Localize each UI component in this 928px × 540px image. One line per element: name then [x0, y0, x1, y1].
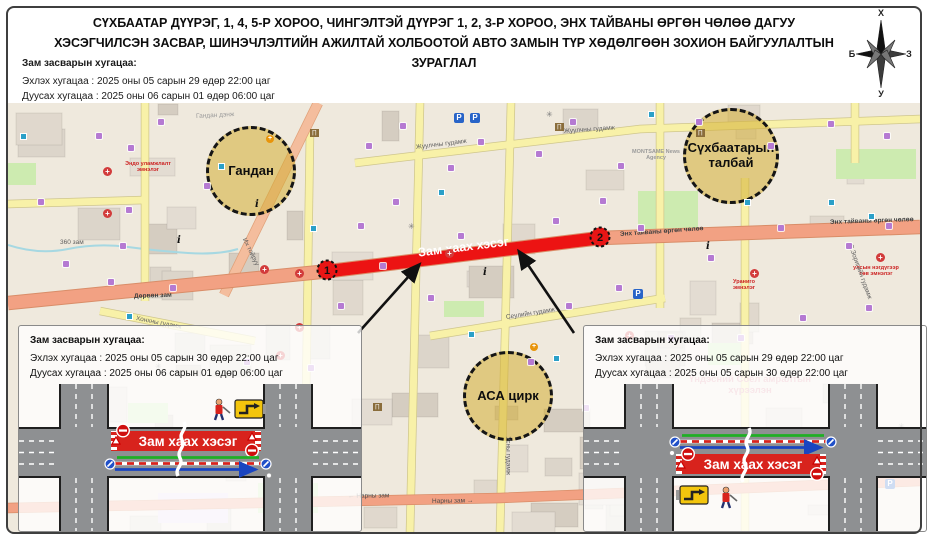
cart-icon	[553, 218, 559, 224]
cart-icon	[63, 261, 69, 267]
street-label: Усны гудамж	[505, 437, 512, 476]
cart-icon	[128, 145, 134, 151]
cross-icon: +	[295, 269, 304, 278]
cart-icon	[158, 119, 164, 125]
inset-left-panel: Зам засварын хугацаа: Эхлэх хугацаа : 20…	[18, 325, 362, 532]
title-line-1: СҮХБААТАР ДҮҮРЭГ, 1, 4, 5-Р ХОРОО, ЧИНГЭ…	[52, 13, 836, 33]
bus-icon	[744, 199, 751, 206]
cart-icon	[204, 183, 210, 189]
cart-icon	[448, 165, 454, 171]
cart-icon	[696, 119, 702, 125]
bank-icon: ∏	[310, 129, 319, 137]
crossO-icon: +	[530, 343, 538, 351]
cross-icon: +	[876, 253, 885, 262]
cross-icon: +	[103, 209, 112, 218]
inset-right-start: Эхлэх хугацаа : 2025 оны 05 сарын 29 өдө…	[595, 351, 848, 366]
closure-marker-2: 2	[591, 228, 610, 247]
bus-icon	[20, 133, 27, 140]
bus-icon	[648, 111, 655, 118]
info-icon: i	[483, 267, 487, 278]
info-icon: i	[255, 199, 259, 210]
road-dot	[670, 451, 675, 456]
inset-left-heading: Зам засварын хугацаа:	[30, 333, 283, 348]
bus-icon	[468, 331, 475, 338]
cart-icon	[428, 295, 434, 301]
keep-side-sign-icon	[105, 459, 115, 469]
cross-icon: +	[103, 167, 112, 176]
street-label: 360 зам	[60, 239, 84, 246]
svg-text:2: 2	[597, 232, 603, 244]
detour-sign-icon	[235, 400, 266, 418]
highlight-circle: АСА цирк	[463, 351, 553, 441]
cart-icon	[886, 223, 892, 229]
compass-west-label: Б	[849, 49, 856, 59]
poster-page: СҮХБААТАР ДҮҮРЭГ, 1, 4, 5-Р ХОРОО, ЧИНГЭ…	[0, 0, 928, 540]
inset-right-end: Дуусах хугацаа : 2025 оны 05 сарын 30 өд…	[595, 366, 848, 381]
worker-icon	[215, 399, 230, 420]
cart-icon	[618, 163, 624, 169]
bank-icon: ∏	[555, 123, 564, 131]
cart-icon	[600, 198, 606, 204]
cart-icon	[616, 285, 622, 291]
cart-icon	[778, 225, 784, 231]
no-entry-icon	[246, 444, 259, 457]
cart-icon	[708, 255, 714, 261]
cart-icon	[800, 315, 806, 321]
cart-icon	[393, 199, 399, 205]
poi-label: MONTSAME News Agency	[632, 149, 680, 161]
cart-icon	[458, 233, 464, 239]
street-label: Нарны зам →	[432, 497, 473, 505]
park-icon: P	[633, 289, 643, 299]
cart-icon	[366, 143, 372, 149]
bus-icon	[553, 355, 560, 362]
inset-left-schedule: Зам засварын хугацаа: Эхлэх хугацаа : 20…	[30, 333, 283, 381]
bus-icon	[126, 313, 133, 320]
bus-icon	[218, 163, 225, 170]
cart-icon	[358, 223, 364, 229]
bus-icon	[438, 189, 445, 196]
info-icon: i	[706, 241, 710, 252]
worker-icon	[722, 487, 737, 508]
park-icon: P	[454, 113, 464, 123]
highlight-circle: Гандан	[206, 126, 296, 216]
cart-icon	[120, 243, 126, 249]
bank-icon: ∏	[373, 403, 382, 411]
inset-right-closure-label: Зам хаах хэсэг	[704, 457, 803, 472]
cart-icon	[108, 279, 114, 285]
cart-icon	[170, 285, 176, 291]
schedule-end: Дуусах хугацаа : 2025 оны 06 сарын 01 өд…	[22, 89, 275, 105]
cross-icon: +	[750, 269, 759, 278]
schedule-heading: Зам засварын хугацаа:	[22, 56, 275, 72]
main-schedule-box: Зам засварын хугацаа: Эхлэх хугацаа : 20…	[22, 56, 275, 105]
bus-icon	[310, 225, 317, 232]
inset-left-diagram: Зам хаах хэсэг	[19, 384, 361, 531]
poi-label: Эндо уламжлалт эмнэлэг	[115, 161, 181, 173]
svg-text:1: 1	[324, 265, 330, 277]
cart-icon	[570, 119, 576, 125]
cart-icon	[536, 151, 542, 157]
cart-icon	[884, 133, 890, 139]
cross-icon: +	[445, 249, 454, 258]
inset-right-diagram: Зам хаах хэсэг	[584, 384, 926, 531]
cart-icon	[638, 225, 644, 231]
cart-icon	[768, 143, 774, 149]
cart-icon	[400, 123, 406, 129]
inset-left-start: Эхлэх хугацаа : 2025 оны 05 сарын 30 өдө…	[30, 351, 283, 366]
keep-side-sign-icon	[670, 437, 680, 447]
cart-icon	[528, 359, 534, 365]
compass-east-label: З	[906, 49, 912, 59]
bank-icon: ∏	[696, 129, 705, 137]
compass-south-label: У	[878, 89, 884, 98]
park-icon: P	[470, 113, 480, 123]
cart-icon	[126, 207, 132, 213]
roadworks-icons	[215, 399, 266, 420]
closure-marker-1: 1	[318, 261, 337, 280]
cart-icon	[38, 199, 44, 205]
road-dot	[267, 473, 272, 478]
star-icon: ✳	[546, 111, 553, 119]
cart-icon	[846, 243, 852, 249]
bus-icon	[868, 213, 875, 220]
inset-right-heading: Зам засварын хугацаа:	[595, 333, 848, 348]
poi-label: Ураниго эмнэлэг	[723, 279, 765, 291]
cart-icon	[866, 305, 872, 311]
no-entry-icon	[811, 468, 824, 481]
inset-left-closure-label: Зам хаах хэсэг	[139, 434, 238, 449]
keep-side-sign-icon	[261, 459, 271, 469]
crossO-icon: +	[266, 135, 274, 143]
cart-icon	[478, 139, 484, 145]
no-entry-icon	[117, 424, 130, 437]
cross-icon: +	[260, 265, 269, 274]
roadworks-icons	[676, 486, 737, 508]
schedule-start: Эхлэх хугацаа : 2025 оны 05 сарын 29 өдө…	[22, 74, 275, 90]
inset-right-panel: Зам засварын хугацаа: Эхлэх хугацаа : 20…	[583, 325, 927, 532]
bus-icon	[828, 199, 835, 206]
cart-icon	[828, 121, 834, 127]
no-entry-icon	[682, 448, 695, 461]
cart-icon	[566, 303, 572, 309]
inset-left-end: Дуусах хугацаа : 2025 оны 06 сарын 01 өд…	[30, 366, 283, 381]
cart-icon	[380, 263, 386, 269]
compass-rose-icon: Х У З Б	[848, 8, 914, 98]
star-icon: ✳	[408, 223, 415, 231]
cart-icon	[96, 133, 102, 139]
info-icon: i	[177, 235, 181, 246]
inset-right-schedule: Зам засварын хугацаа: Эхлэх хугацаа : 20…	[595, 333, 848, 381]
compass-north-label: Х	[878, 8, 884, 18]
street-label: Дөрвөн зам	[134, 292, 172, 300]
cart-icon	[338, 303, 344, 309]
detour-sign-icon	[676, 486, 708, 504]
keep-side-sign-icon	[826, 437, 836, 447]
